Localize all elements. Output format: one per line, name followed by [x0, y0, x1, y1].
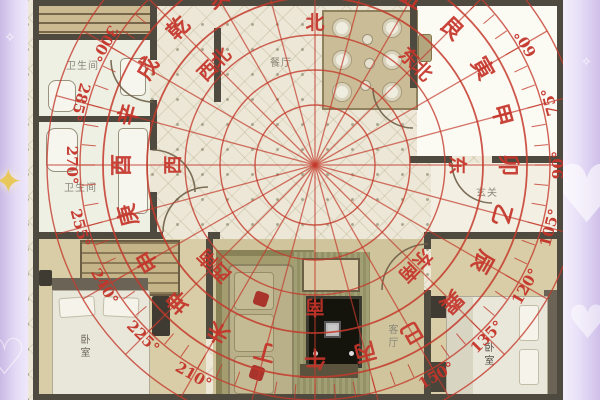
plate-icon: [332, 18, 352, 38]
tv-knob: [349, 351, 354, 356]
toilet: [46, 128, 78, 172]
sink: [120, 58, 146, 96]
dining-table: [322, 10, 418, 110]
bed-left: [52, 290, 150, 398]
dish-icon: [360, 80, 371, 91]
heart-outline-icon: ♡: [0, 328, 27, 386]
sofa: [228, 264, 294, 400]
bathtub: [118, 128, 148, 214]
wall: [33, 394, 563, 400]
kitchen-floor: [417, 6, 557, 156]
room-label-bathroom-mid: 卫生间: [64, 183, 97, 194]
heart-icon: ♥: [567, 295, 600, 349]
wall: [208, 232, 220, 239]
right-border: ✧ ♥ ♥: [563, 0, 600, 400]
heart-icon: ♥: [563, 148, 600, 241]
plate-icon: [382, 82, 402, 102]
nightstand: [430, 296, 446, 318]
dining-chair: [418, 34, 432, 62]
wall: [410, 156, 452, 163]
wall: [410, 0, 417, 88]
plate-icon: [332, 82, 352, 102]
nightstand: [39, 270, 52, 286]
wall: [33, 116, 157, 122]
left-border: ✧ ✦ ♡: [0, 0, 28, 400]
wall: [33, 232, 163, 239]
wall-niche: [302, 258, 360, 292]
room-label-living: 客厅: [386, 324, 397, 350]
sparkle-icon: ✧: [581, 55, 592, 70]
room-label-dining: 餐厅: [270, 58, 292, 69]
dish-icon: [364, 58, 375, 69]
balcony-closet: [35, 4, 153, 34]
wall: [424, 239, 431, 249]
room-label-bedroom-right: 卧室: [482, 342, 493, 368]
sofa-cushion: [234, 314, 274, 352]
wall: [150, 100, 157, 150]
wall: [214, 28, 221, 102]
wall: [492, 156, 563, 163]
pillow: [58, 296, 95, 318]
dish-icon: [362, 34, 373, 45]
plate-icon: [332, 50, 352, 70]
wall: [150, 0, 157, 60]
room-label-bedroom-left: 卧室: [78, 334, 89, 360]
wall: [33, 0, 39, 400]
room-label-bathroom-top: 卫生间: [66, 61, 99, 72]
fengshui-floorplan-image: ✧ ✦ ♡ ✧ ♥ ♥: [0, 0, 600, 400]
tv-knob: [313, 351, 318, 356]
room-label-entry: 玄关: [476, 188, 498, 199]
pillow: [519, 305, 539, 341]
pillow: [519, 349, 539, 385]
pillow: [103, 296, 140, 318]
bed-headboard: [52, 278, 148, 290]
plate-icon: [382, 50, 402, 70]
tv-shelf: [300, 364, 358, 378]
wall: [424, 290, 431, 400]
dresser: [430, 362, 446, 392]
dresser: [152, 296, 170, 336]
wall: [206, 239, 213, 339]
bed-right: [446, 296, 548, 398]
tv: [306, 296, 362, 368]
wall: [33, 34, 157, 40]
toilet: [48, 80, 76, 112]
sparkle-icon: ✧: [4, 30, 16, 46]
tv-screen: [324, 321, 341, 338]
plate-icon: [382, 18, 402, 38]
gold-star-icon: ✦: [0, 162, 23, 202]
wall: [33, 0, 563, 6]
blanket-fold: [447, 297, 473, 397]
wall: [557, 0, 563, 400]
wall: [424, 232, 563, 239]
